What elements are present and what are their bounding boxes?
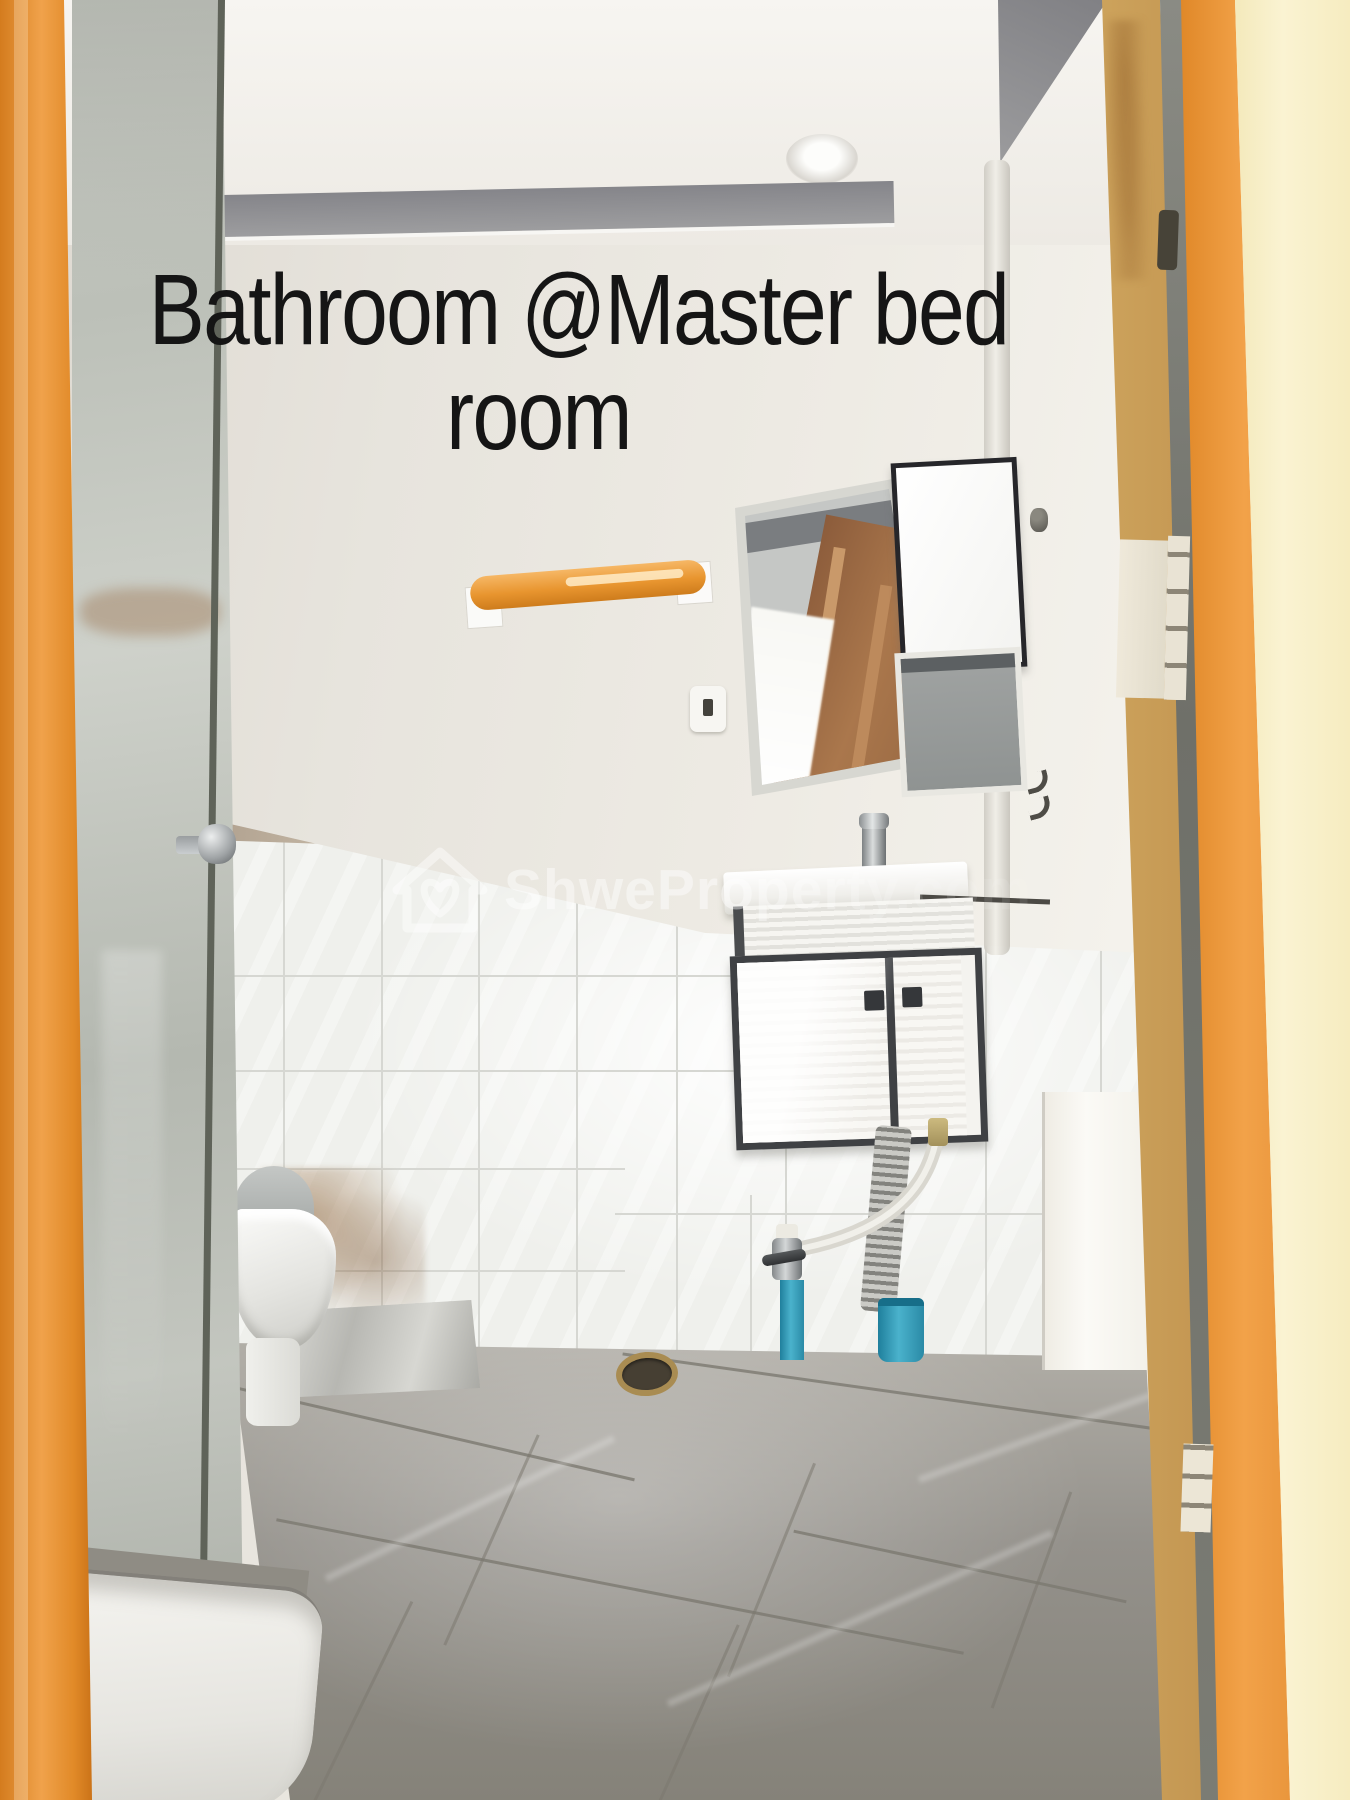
orange-towel-bar: [469, 559, 707, 611]
toilet-base: [246, 1338, 300, 1426]
floor-grout: [310, 1601, 414, 1800]
towel-hook: [1026, 795, 1053, 820]
wall-cabinet-door-upper: [891, 457, 1028, 673]
hose-connector: [928, 1118, 948, 1146]
caption-line-1: Bathroom @Master bed: [149, 258, 808, 363]
blue-pipe-sleeve: [878, 1298, 924, 1362]
wall-tile-trim: [231, 821, 364, 846]
door-hinge-plate: [1116, 539, 1168, 698]
watermark: ShweProperty.com: [392, 846, 1032, 934]
caption-overlay: Bathroom @Master bed room: [149, 258, 808, 468]
door-hinge-lower: [1180, 1444, 1213, 1533]
glass-reflection: [102, 950, 162, 1450]
floor-grout: [793, 1530, 1126, 1604]
floor-grout: [643, 1624, 739, 1800]
bathroom-photo: Bathroom @Master bed room ShweProperty.c…: [0, 0, 1350, 1800]
door-latch: [1157, 210, 1179, 271]
tile-grout-vertical: [750, 1195, 752, 1370]
light-switch: [690, 686, 726, 732]
cabinet-handle-right: [902, 987, 923, 1008]
caption-line-2: room: [209, 363, 868, 468]
tile-grout-horizontal: [225, 1070, 750, 1072]
cabinet-sheen: [737, 955, 981, 1143]
door-hinge-upper: [1164, 536, 1190, 701]
watermark-house-icon: [392, 846, 488, 934]
shower-door-knob-cap: [198, 824, 236, 864]
floor-scratch: [325, 1435, 616, 1582]
doorway-reveal: [1042, 1092, 1147, 1370]
blue-pipe: [780, 1280, 804, 1360]
wall-cabinet-door-lower: [894, 647, 1027, 797]
towel-hook: [1024, 769, 1051, 794]
glass-reflection: [80, 588, 220, 636]
ceiling-light: [786, 134, 858, 184]
floor-scratch: [667, 1530, 1054, 1707]
floor-grout: [991, 1491, 1072, 1708]
watermark-text: ShweProperty.com: [504, 857, 1032, 923]
floor-grout: [276, 1518, 964, 1655]
tile-grout-horizontal: [225, 975, 745, 977]
wall-screw: [1030, 508, 1048, 532]
reflected-light-gap: [722, 607, 835, 808]
cabinet-handle-left: [864, 990, 885, 1011]
floor-grout: [443, 1434, 539, 1645]
